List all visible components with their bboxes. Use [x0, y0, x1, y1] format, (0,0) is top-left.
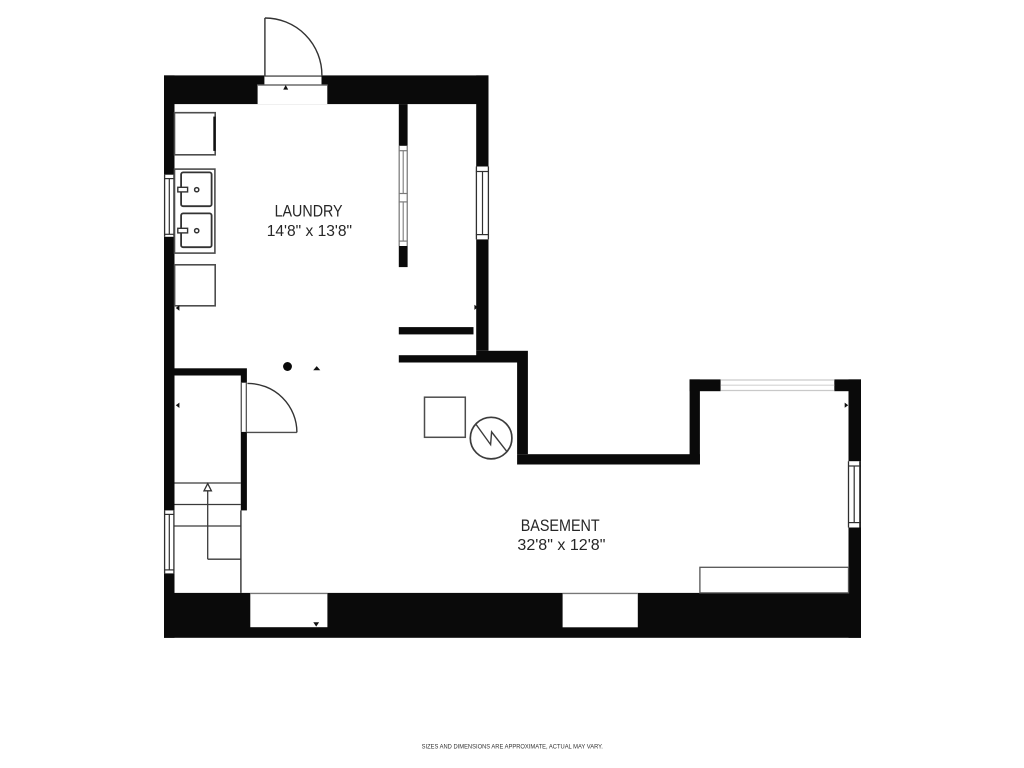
svg-text:14'8" x 13'8": 14'8" x 13'8": [267, 223, 352, 240]
svg-text:BASEMENT: BASEMENT: [521, 517, 600, 535]
svg-text:LAUNDRY: LAUNDRY: [275, 202, 343, 220]
svg-text:32'8" x 12'8": 32'8" x 12'8": [517, 537, 605, 554]
svg-text:SIZES AND DIMENSIONS ARE APPRO: SIZES AND DIMENSIONS ARE APPROXIMATE, AC…: [422, 744, 603, 751]
